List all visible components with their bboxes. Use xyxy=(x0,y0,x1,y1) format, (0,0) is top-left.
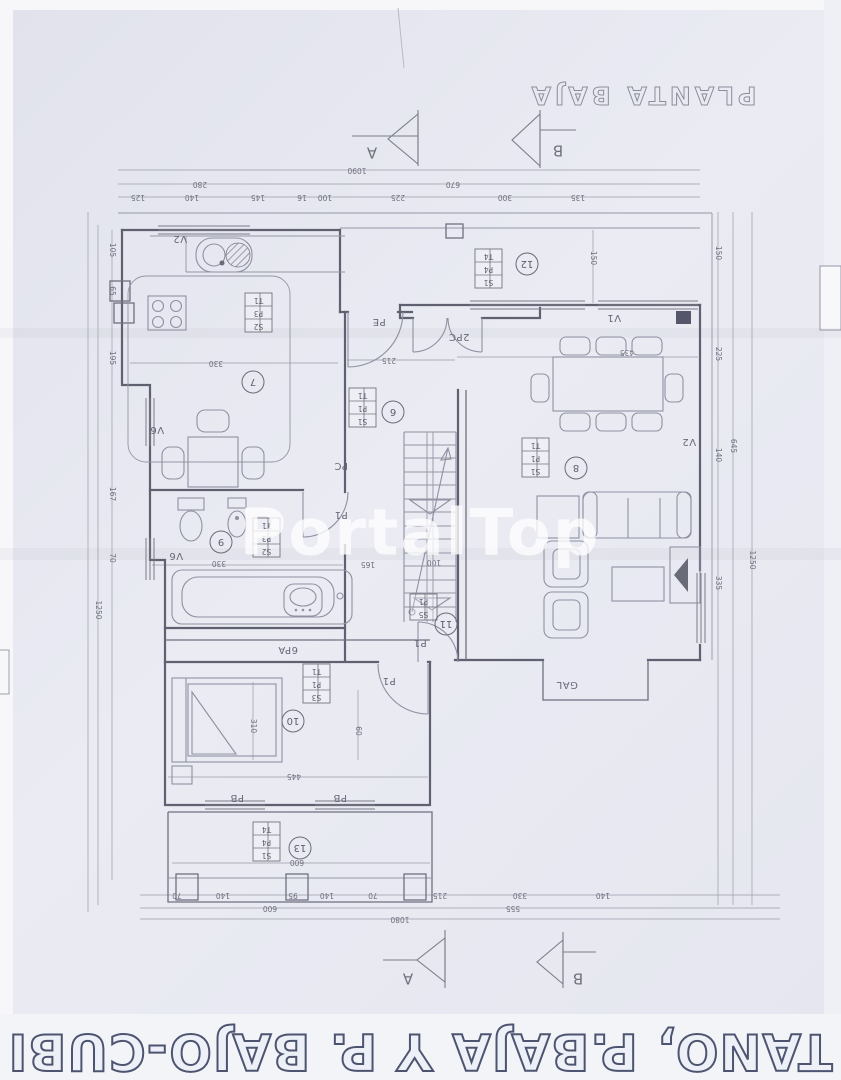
dim-right-0: 150 xyxy=(714,246,723,261)
label-v2-kitchen: V2 xyxy=(173,233,187,244)
svg-text:7: 7 xyxy=(250,376,256,387)
svg-text:P1: P1 xyxy=(312,680,322,689)
bathtub xyxy=(172,570,352,624)
dim-left-3: 167 xyxy=(108,487,117,502)
dim-bath: 330 xyxy=(212,559,227,568)
room-number-10: 10 xyxy=(282,710,304,732)
svg-text:S1: S1 xyxy=(531,467,541,476)
room-number-13: 13 xyxy=(289,837,311,859)
label-v1: V1 xyxy=(607,312,621,323)
dim-terrace-v: 150 xyxy=(589,251,598,266)
coffee-table xyxy=(612,567,664,601)
dim-left-5: 1250 xyxy=(94,600,103,619)
bed-fold xyxy=(192,692,236,754)
dim-right-1: 225 xyxy=(714,347,723,362)
window-v2-kitchen xyxy=(158,226,250,234)
dim-bot-mid-0: 600 xyxy=(263,904,278,913)
dim-porch: 600 xyxy=(290,858,305,867)
dim-bot-d2: 95 xyxy=(288,891,298,900)
svg-text:B: B xyxy=(553,142,563,160)
dim-bedroom-v2: 60 xyxy=(354,726,363,736)
breakfast-table xyxy=(162,410,264,487)
bottom-banner-text: TANO, P.BAJA Y P. BAJO-CUBI xyxy=(8,1023,833,1080)
dim-top-mid-1: 670 xyxy=(446,180,461,189)
label-6pa: 6PA xyxy=(278,644,298,655)
dim-bot-mid-1: 555 xyxy=(506,904,521,913)
dim-hall: 215 xyxy=(382,356,397,365)
dim-top-d6: 300 xyxy=(498,193,513,202)
svg-text:P1: P1 xyxy=(531,454,541,463)
label-pb-right: PB xyxy=(333,792,347,803)
dim-kitchen: 330 xyxy=(209,359,224,368)
schedule-hall: T1 P1 S1 xyxy=(349,388,376,427)
bedroom-furniture xyxy=(172,678,282,784)
svg-text:S2: S2 xyxy=(254,322,264,331)
living-furniture xyxy=(531,337,700,638)
room-number-12: 12 xyxy=(516,253,538,275)
dim-bot-d7: 140 xyxy=(596,891,611,900)
watermark: PortalTop xyxy=(239,497,600,571)
svg-text:T1: T1 xyxy=(254,296,265,305)
svg-text:P1: P1 xyxy=(358,404,368,413)
dim-right-3: 645 xyxy=(729,439,738,454)
section-marker-a-bottom: A xyxy=(383,930,445,988)
floorplan-drawing: 1090 280 670 125 140 145 16 100 225 300 … xyxy=(0,0,841,1080)
kitchen-fixtures xyxy=(128,236,345,487)
dim-left-1: 65 xyxy=(108,286,117,296)
toilet xyxy=(178,498,204,541)
schedule-stairs: P1 S5 xyxy=(410,594,437,620)
label-2pc: 2PC xyxy=(449,331,470,342)
dim-bedroom-v: 310 xyxy=(249,719,258,734)
dim-top-d0: 125 xyxy=(131,193,146,202)
dim-top-d4: 100 xyxy=(318,193,333,202)
label-p1-bedroom: P1 xyxy=(382,675,395,686)
nightstand xyxy=(172,766,192,784)
bed xyxy=(172,678,282,762)
svg-text:10: 10 xyxy=(287,715,300,726)
window-v6-upper xyxy=(146,398,154,446)
dim-bot-d3: 140 xyxy=(320,891,335,900)
window-v1-living-b xyxy=(598,301,698,309)
dim-bot-d0: 70 xyxy=(172,891,182,900)
dim-bot-d4: 70 xyxy=(368,891,378,900)
svg-text:T4: T4 xyxy=(262,825,273,834)
schedule-terrace: T4 P4 S1 xyxy=(475,249,502,288)
dining-table xyxy=(531,337,683,431)
schedule-bedroom: T1 P1 S3 xyxy=(303,664,330,703)
svg-text:S1: S1 xyxy=(484,278,494,287)
svg-text:S1: S1 xyxy=(262,851,272,860)
dim-left-2: 195 xyxy=(108,351,117,366)
column-hatched xyxy=(114,303,134,323)
dim-top-d5: 225 xyxy=(391,193,406,202)
svg-text:8: 8 xyxy=(573,462,579,473)
svg-text:A: A xyxy=(402,970,413,988)
stove xyxy=(148,296,186,330)
svg-text:S1: S1 xyxy=(358,417,368,426)
dim-right-5: 1250 xyxy=(748,550,757,569)
svg-text:P4: P4 xyxy=(484,265,494,274)
dim-top-d1: 140 xyxy=(185,193,200,202)
dim-bedroom: 445 xyxy=(287,772,302,781)
schedule-living: T1 P1 S1 xyxy=(522,438,549,477)
terrace-column xyxy=(446,224,463,238)
window-v1-living-a xyxy=(470,301,585,309)
svg-text:S3: S3 xyxy=(312,693,322,702)
svg-text:S5: S5 xyxy=(419,610,429,619)
plan-title: PLANTA BAJA xyxy=(528,81,757,110)
svg-text:T1: T1 xyxy=(358,391,369,400)
svg-text:P4: P4 xyxy=(262,838,272,847)
washbasin xyxy=(284,584,322,616)
adjacent-page-fragment xyxy=(820,266,841,330)
dim-bot-d1: 140 xyxy=(216,891,231,900)
schedule-kitchen: T1 P3 S2 xyxy=(245,293,272,332)
svg-text:11: 11 xyxy=(440,618,453,629)
label-pc: PC xyxy=(334,460,348,471)
label-gal: GAL xyxy=(556,679,578,690)
room-number-6: 6 xyxy=(382,401,404,423)
paper-fold-line xyxy=(398,8,404,68)
dim-top-total: 1090 xyxy=(347,166,366,175)
armchair-2 xyxy=(544,592,588,638)
dim-top-d2: 145 xyxy=(251,193,266,202)
label-p1-stairs: P1 xyxy=(413,637,426,648)
dim-bot-d5: 215 xyxy=(433,891,448,900)
svg-text:P1: P1 xyxy=(419,597,429,606)
label-v6-lower: V6 xyxy=(169,550,183,561)
tv-icon xyxy=(674,558,688,592)
section-marker-b-top: B xyxy=(512,110,576,168)
section-marker-a-top: A xyxy=(352,110,418,166)
svg-text:6: 6 xyxy=(390,406,396,417)
door-p1-bedroom xyxy=(378,664,428,714)
svg-text:13: 13 xyxy=(294,842,307,853)
dim-right-4: 335 xyxy=(714,576,723,591)
label-v6-upper: V6 xyxy=(150,424,164,435)
section-marker-b-bottom: B xyxy=(537,932,596,988)
room-number-7: 7 xyxy=(242,371,264,393)
room-number-11: 11 xyxy=(435,613,457,635)
dim-top-d3: 16 xyxy=(297,193,307,202)
svg-text:A: A xyxy=(366,144,377,162)
svg-text:9: 9 xyxy=(218,536,224,547)
svg-text:B: B xyxy=(573,970,583,988)
dim-top-d7: 135 xyxy=(571,193,586,202)
svg-text:P3: P3 xyxy=(254,309,264,318)
label-pb-left: PB xyxy=(230,792,244,803)
dim-bot-total: 1080 xyxy=(390,915,409,924)
scanned-floorplan-page: 1090 280 670 125 140 145 16 100 225 300 … xyxy=(0,0,841,1080)
svg-text:T1: T1 xyxy=(312,667,323,676)
dim-right-2: 140 xyxy=(714,448,723,463)
dim-top-mid-0: 280 xyxy=(193,180,208,189)
svg-text:12: 12 xyxy=(521,258,534,269)
svg-text:T4: T4 xyxy=(484,252,495,261)
dim-left-4: 70 xyxy=(108,553,117,563)
dim-left-0: 105 xyxy=(108,243,117,258)
kitchen-sink xyxy=(196,238,252,272)
label-v2-living: V2 xyxy=(682,436,696,447)
room-number-8: 8 xyxy=(565,457,587,479)
schedule-porch: T4 P4 S1 xyxy=(253,822,280,861)
dim-bot-d6: 330 xyxy=(513,891,528,900)
svg-text:T1: T1 xyxy=(531,441,542,450)
label-pe: PE xyxy=(372,316,385,327)
window-v2-living-side xyxy=(697,573,705,643)
column-solid xyxy=(676,311,691,324)
